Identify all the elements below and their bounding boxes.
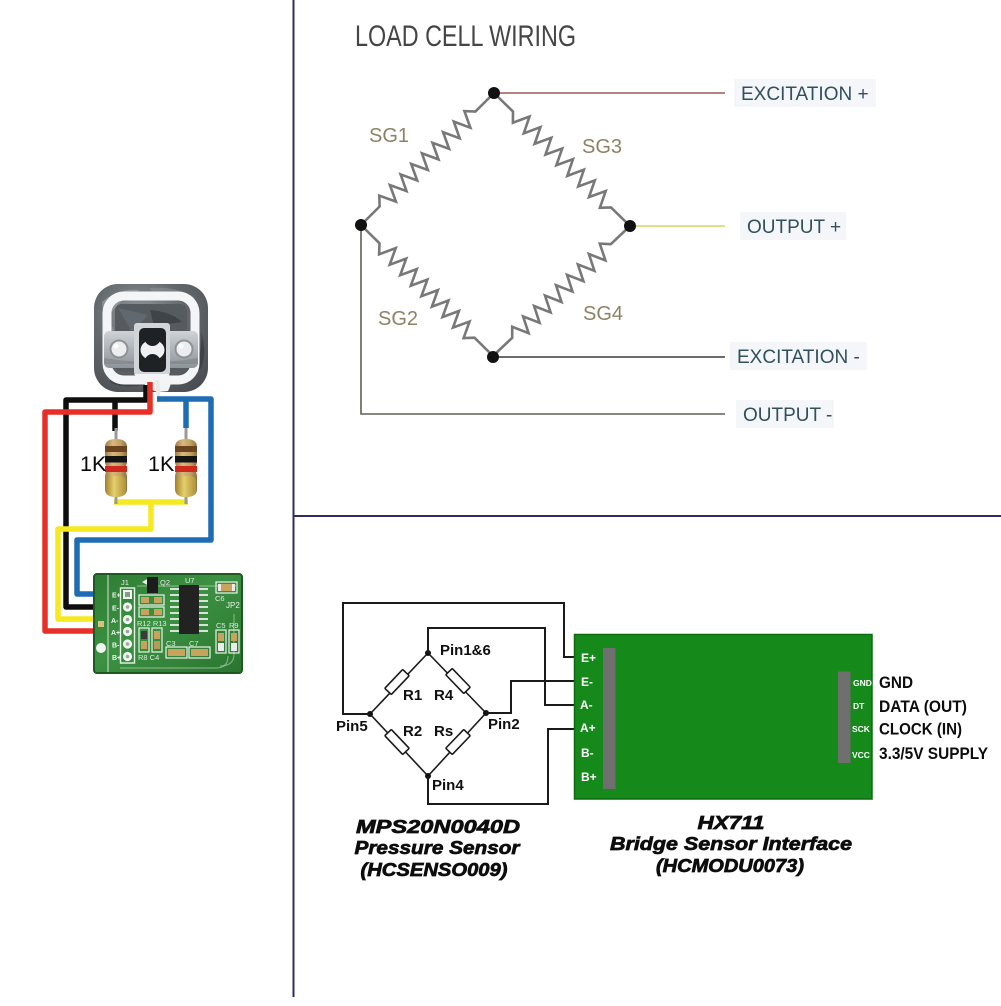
svg-text:(HCMODU0073): (HCMODU0073) <box>656 856 804 876</box>
svg-text:GND: GND <box>879 674 913 692</box>
svg-text:OUTPUT -: OUTPUT - <box>743 405 832 426</box>
svg-text:(HCSENSO009): (HCSENSO009) <box>361 860 508 880</box>
svg-text:Rs: Rs <box>434 723 453 740</box>
svg-text:Pressure Sensor: Pressure Sensor <box>355 838 521 858</box>
svg-text:Bridge Sensor Interface: Bridge Sensor Interface <box>610 834 852 854</box>
svg-text:SCK: SCK <box>852 724 871 734</box>
svg-text:B+: B+ <box>112 655 121 662</box>
svg-text:Pin1&6: Pin1&6 <box>440 642 491 659</box>
svg-text:SG4: SG4 <box>583 303 623 325</box>
svg-text:HX711: HX711 <box>698 813 765 833</box>
svg-text:JP2: JP2 <box>226 601 240 610</box>
svg-text:SG1: SG1 <box>369 125 409 147</box>
svg-text:VCC: VCC <box>852 750 870 760</box>
svg-text:A+: A+ <box>111 630 120 637</box>
svg-text:E+: E+ <box>581 651 596 665</box>
svg-text:A+: A+ <box>580 721 596 735</box>
svg-text:DATA (OUT): DATA (OUT) <box>879 698 967 716</box>
svg-text:1K: 1K <box>80 452 107 476</box>
svg-text:B-: B- <box>581 746 594 760</box>
svg-text:EXCITATION +: EXCITATION + <box>741 84 869 105</box>
svg-text:C6: C6 <box>215 594 225 603</box>
svg-text:R9: R9 <box>229 621 239 630</box>
svg-text:E-: E- <box>112 606 120 613</box>
svg-text:OUTPUT +: OUTPUT + <box>747 217 841 238</box>
svg-text:R12 R13: R12 R13 <box>137 619 167 628</box>
svg-text:U7: U7 <box>185 576 195 585</box>
svg-text:R1: R1 <box>403 687 422 704</box>
svg-text:CLOCK (IN): CLOCK (IN) <box>879 721 962 739</box>
svg-text:Pin5: Pin5 <box>336 718 368 735</box>
svg-text:A-: A- <box>580 698 593 712</box>
svg-text:LOAD CELL WIRING: LOAD CELL WIRING <box>355 20 576 53</box>
svg-text:GND: GND <box>853 678 872 688</box>
svg-text:Pin4: Pin4 <box>432 777 464 794</box>
svg-text:C5: C5 <box>216 621 226 630</box>
svg-text:J1: J1 <box>121 578 129 587</box>
svg-text:R4: R4 <box>434 687 454 704</box>
svg-text:DT: DT <box>853 701 865 711</box>
svg-text:E+: E+ <box>112 593 121 600</box>
svg-text:B+: B+ <box>581 770 597 784</box>
svg-text:Pin2: Pin2 <box>488 716 520 733</box>
svg-text:Q2: Q2 <box>160 578 170 587</box>
svg-text:R2: R2 <box>403 723 422 740</box>
svg-text:1K: 1K <box>148 452 175 476</box>
svg-text:E-: E- <box>581 675 593 689</box>
svg-text:SG2: SG2 <box>378 308 418 330</box>
svg-text:SG3: SG3 <box>582 136 622 158</box>
svg-text:MPS20N0040D: MPS20N0040D <box>356 817 520 837</box>
svg-text:3.3/5V SUPPLY: 3.3/5V SUPPLY <box>879 745 988 763</box>
svg-text:A-: A- <box>111 618 119 625</box>
svg-text:EXCITATION -: EXCITATION - <box>737 347 860 368</box>
svg-text:R8 C4: R8 C4 <box>138 653 159 662</box>
svg-text:B-: B- <box>112 643 120 650</box>
